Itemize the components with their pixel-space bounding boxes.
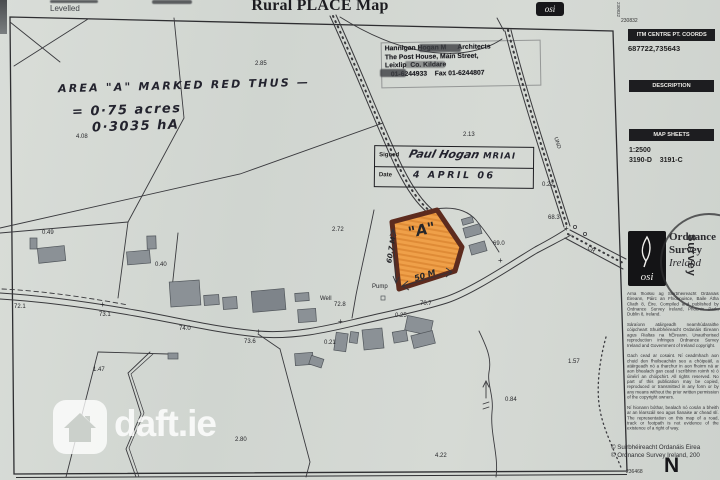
map-label: CR <box>586 245 596 254</box>
smallprint-block: Sáraíonn atáirgeadh neamhúdaraithe cóipc… <box>627 323 719 349</box>
map-label: Pump <box>372 284 388 290</box>
map-label: Well <box>320 296 332 302</box>
map-label: 4.22 <box>435 453 447 459</box>
map-label: + <box>498 256 503 265</box>
smallprint-block: Arna fhoilsiú ag Suirbhéireacht Ordanáis… <box>627 292 719 318</box>
itm-header-label: ITM CENTRE PT. COORDS <box>637 30 707 40</box>
map-label: 0.84 <box>505 397 517 403</box>
map-label: 0.21 <box>324 340 336 346</box>
map-label: 0.49 <box>42 230 54 236</box>
map-label: 2.13 <box>463 132 475 138</box>
map-label: 1.57 <box>568 359 580 365</box>
map-sheets-header-bar: MAP SHEETS <box>629 129 714 141</box>
seal-text: Survey <box>685 234 697 277</box>
map-label: 74.0 <box>179 326 191 332</box>
north-indicator: N <box>664 454 679 478</box>
sheet-number-top: 230832 <box>621 18 638 24</box>
map-label: 70.7 <box>420 301 432 307</box>
map-label: 0.25 <box>395 313 407 319</box>
map-label: 69.0 <box>493 241 505 247</box>
map-sheet-numbers: 3190-D 3191-C <box>629 157 683 164</box>
map-label: "A" <box>406 218 436 241</box>
map-label: + <box>338 317 343 326</box>
sheet-number-bottom: 236468 <box>626 469 643 475</box>
osi-feather-icon <box>634 235 660 269</box>
map-label: + <box>256 327 261 336</box>
daft-house-icon <box>52 399 108 455</box>
scanned-map-page: Levelled Rural PLACE Map osi 230832 Hann… <box>0 0 720 480</box>
copyright-irish: © Suirbhéireacht Ordanáis Éirea <box>611 444 720 452</box>
map-label: + <box>100 300 105 309</box>
map-label: 0.22 <box>542 182 554 188</box>
smallprint-block: Ní hionann bóthar, bealach nó cosán a bh… <box>627 406 719 432</box>
map-label: 72.1 <box>14 304 26 310</box>
daft-watermark: daft.ie <box>52 397 252 461</box>
itm-header-bar: ITM CENTRE PT. COORDS <box>628 29 715 41</box>
map-label: 1.47 <box>93 367 105 373</box>
map-sheets-header-label: MAP SHEETS <box>638 130 706 140</box>
map-label: UND <box>552 136 561 149</box>
description-header-bar: DESCRIPTION <box>629 80 714 92</box>
map-label: 68.3 <box>548 215 560 221</box>
map-label: 73.1 <box>99 312 111 318</box>
copyright-smallprint: Arna fhoilsiú ag Suirbhéireacht Ordanáis… <box>627 292 719 437</box>
map-label: 60.7 M <box>385 236 397 264</box>
map-label: 4.08 <box>76 134 88 140</box>
map-label: 0.40 <box>155 262 167 268</box>
map-label: + <box>564 224 569 233</box>
itm-coords-value: 687722,735643 <box>628 44 680 53</box>
map-label: 2.85 <box>255 61 267 67</box>
map-label: 72.8 <box>334 302 346 308</box>
map-label: 2.72 <box>332 227 344 233</box>
map-label: 50 M <box>413 268 437 283</box>
smallprint-block: Gach cead ar cosaint. Ní ceadmhach aon c… <box>627 354 719 401</box>
daft-wordmark: daft.ie <box>114 403 216 445</box>
map-scale-value: 1:2500 <box>629 147 651 154</box>
map-label: 73.6 <box>244 339 256 345</box>
description-header-label: DESCRIPTION <box>638 81 706 91</box>
